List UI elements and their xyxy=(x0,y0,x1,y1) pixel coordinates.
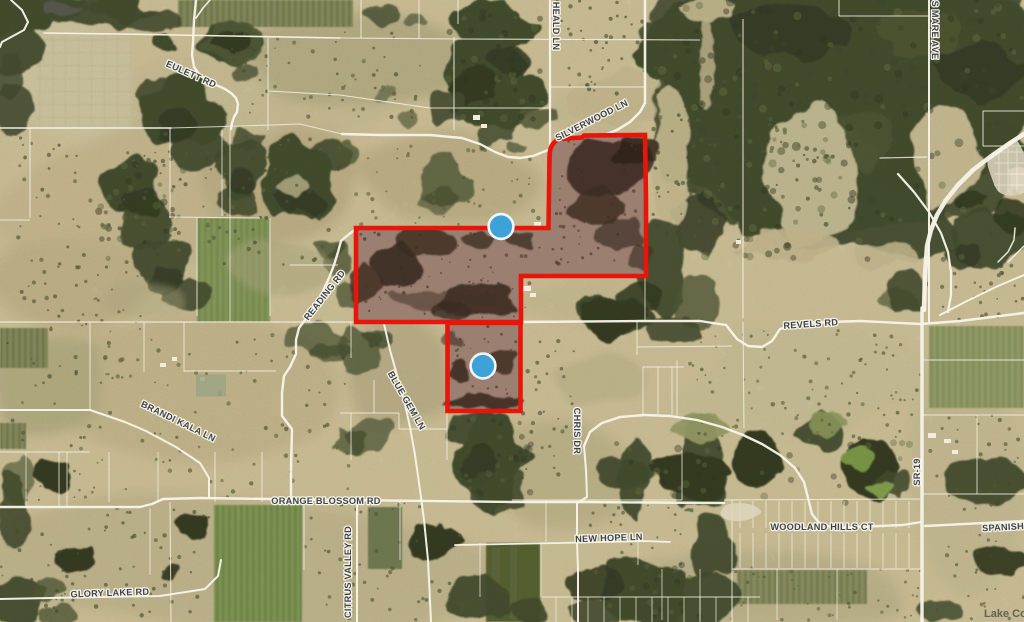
svg-text:HEALD LN: HEALD LN xyxy=(551,2,561,51)
svg-text:CHRIS DR: CHRIS DR xyxy=(572,408,582,455)
svg-text:S MARE AVE: S MARE AVE xyxy=(930,1,940,60)
svg-text:CITRUS VALLEY RD: CITRUS VALLEY RD xyxy=(343,526,353,618)
svg-text:SPANISH H: SPANISH H xyxy=(982,521,1024,534)
svg-text:Lake Co: Lake Co xyxy=(984,608,1024,620)
svg-text:ORANGE BLOSSOM RD: ORANGE BLOSSOM RD xyxy=(271,496,381,506)
svg-text:SR-19: SR-19 xyxy=(912,458,922,485)
svg-text:WOODLAND HILLS CT: WOODLAND HILLS CT xyxy=(770,522,873,532)
